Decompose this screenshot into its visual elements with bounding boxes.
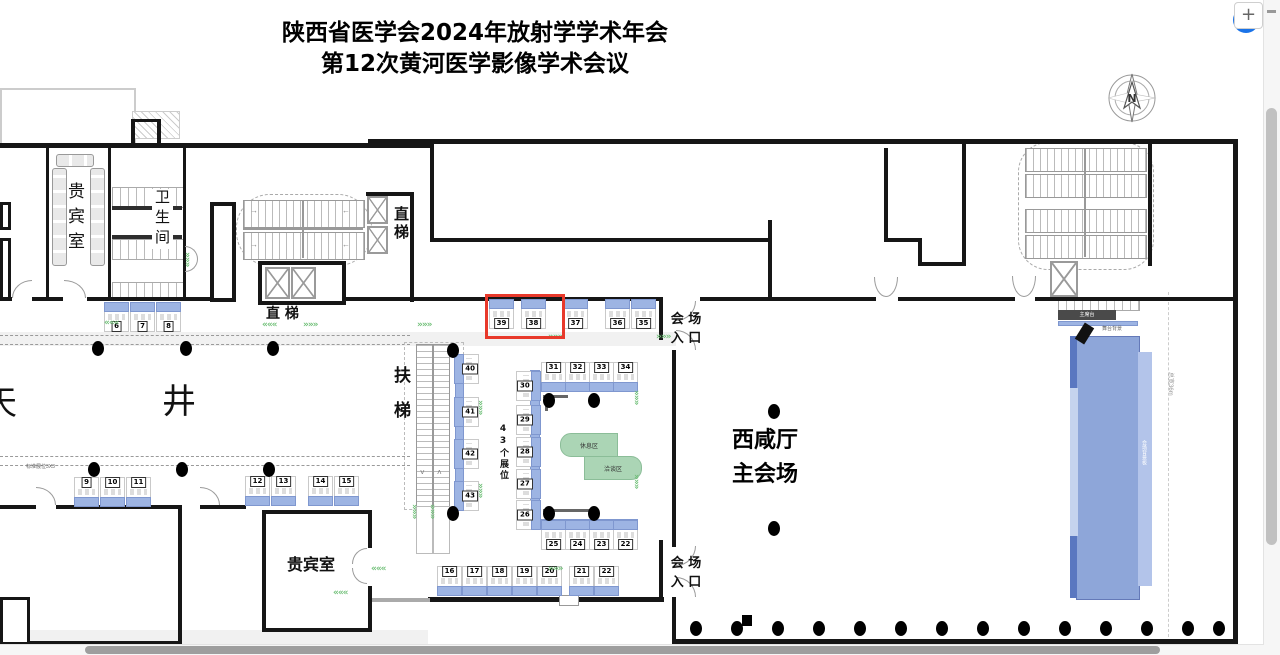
sofa-table [56, 154, 94, 167]
entrance-top-line2: 入 口 [664, 329, 708, 348]
stage-dashed-line [1168, 292, 1169, 642]
column-dot [895, 621, 907, 636]
elevator-shaft [265, 267, 290, 299]
column-dot [588, 393, 600, 408]
booth-wall-bar [156, 302, 181, 312]
wall [659, 540, 663, 601]
door-arc [886, 277, 898, 297]
column-dot [1141, 621, 1153, 636]
booth-9: 9 [74, 477, 99, 507]
column-shaft [210, 202, 236, 302]
stair-arrow: → [250, 240, 258, 249]
booth-wall-bar [130, 302, 155, 312]
column-dot [854, 621, 866, 636]
horizontal-scrollbar[interactable] [0, 644, 1264, 655]
booth-18: 18 [487, 566, 512, 596]
booth-14: 14 [308, 476, 333, 506]
booth-wall-bar [541, 520, 566, 530]
rest-area-top-label: 休息区 [580, 441, 598, 450]
booth-number-label: 27 [517, 479, 533, 490]
direction-chevron: »»» [548, 564, 562, 574]
wall [700, 297, 876, 301]
booth-25: 25 [541, 520, 566, 550]
escalator-down-mark: ˅ [420, 468, 425, 477]
wall [157, 119, 161, 146]
staircase-center [236, 194, 372, 266]
direction-chevron: »»» [417, 320, 431, 330]
wall [0, 505, 36, 509]
hall-label-line2: 主会场 [710, 458, 820, 492]
direction-chevron: »»» [475, 400, 485, 414]
booth-wall-bar [605, 299, 630, 309]
booth-wall-bar [126, 497, 151, 507]
wall [1148, 139, 1152, 266]
railing [372, 598, 430, 602]
booth-count-label: 43个展位 [497, 424, 510, 481]
booth-16: 16 [437, 566, 462, 596]
stair-arrow: → [250, 206, 258, 215]
escalator-lane [416, 344, 433, 508]
zoom-in-button[interactable]: + [1234, 2, 1263, 29]
booth-number-label: 14 [313, 476, 329, 487]
left-room-stub [0, 202, 11, 230]
wall [884, 148, 888, 242]
building-outline [0, 88, 136, 148]
booth-7: 7 [130, 302, 155, 332]
booth-number-label: 11 [131, 477, 147, 488]
direction-chevron: »»» [631, 474, 641, 488]
stage-step [1058, 321, 1138, 326]
booth-number-label: 12 [250, 476, 266, 487]
rest-area-top: 休息区 [560, 433, 618, 457]
booth-11: 11 [126, 477, 151, 507]
booth-number-label: 7 [137, 321, 148, 332]
booth-wall-bar [589, 382, 614, 392]
booth-34: 34 [613, 362, 638, 392]
left-room-stub [0, 238, 11, 300]
column-dot [180, 341, 192, 356]
booth-10: 10 [100, 477, 125, 507]
scrollbar-dash [1267, 10, 1276, 13]
column-dot [1213, 621, 1225, 636]
booth-number-label: 29 [517, 415, 533, 426]
booth-19: 19 [512, 566, 537, 596]
booth-wall-bar [613, 520, 638, 530]
wall [131, 119, 135, 146]
escalator-label: 扶梯 [388, 366, 413, 436]
wall [183, 146, 186, 300]
roof-hatch [132, 111, 180, 139]
wall [1233, 139, 1238, 645]
wall [46, 146, 49, 300]
rest-area-bottom-label: 洽谈区 [604, 464, 622, 473]
booth-number-label: 37 [568, 318, 584, 329]
column-dot [977, 621, 989, 636]
booth-number-label: 15 [339, 476, 355, 487]
direction-chevron: »»» [631, 390, 641, 404]
booth-number-label: 18 [492, 566, 508, 577]
direction-chevron: ««« [371, 564, 385, 574]
wall [428, 597, 664, 602]
wall [768, 220, 772, 301]
atrium-edge-bottom [0, 456, 410, 466]
title-line2: 第12次黄河医学影像学术会议 [255, 49, 695, 80]
hall-label-line1: 西咸厅 [710, 424, 820, 458]
booth-wall-bar [537, 586, 562, 596]
booth-wall-bar [565, 382, 590, 392]
standard-booth-note: 标准展位3X3 [26, 463, 55, 470]
floor-plan-viewer: 陕西省医学会2024年放射学学术年会 第12次黄河医学影像学术会议 + N [0, 0, 1280, 655]
entrance-top-label: 会 场 入 口 [664, 310, 708, 348]
page-title: 陕西省医学会2024年放射学学术年会 第12次黄河医学影像学术会议 [255, 18, 695, 80]
booth-31: 31 [541, 362, 566, 392]
booth-wall-bar [437, 586, 462, 596]
column-dot [176, 462, 188, 477]
booth-wall-bar [245, 496, 270, 506]
direction-chevron: »»» [182, 252, 192, 266]
booth-wall-bar [462, 586, 487, 596]
door-arc [1012, 276, 1024, 297]
stage-note: 舞台背景 [1102, 325, 1122, 332]
wall [898, 297, 1015, 301]
booth-22: 22 [594, 566, 619, 596]
door-arc [12, 280, 32, 298]
booth-8: 8 [156, 302, 181, 332]
atrium-edge-top [0, 335, 410, 345]
direction-chevron: »»» [409, 504, 419, 518]
booth-number-label: 33 [594, 362, 610, 373]
wall [1035, 297, 1237, 301]
booth-26: 26 [516, 500, 541, 530]
booth-wall-bar [487, 586, 512, 596]
booth-number-label: 31 [546, 362, 562, 373]
booth-number-label: 22 [618, 539, 634, 550]
stage-bar: 主席台 [1058, 310, 1116, 320]
booth-13: 13 [271, 476, 296, 506]
column-dot [936, 621, 948, 636]
toilet-stalls [112, 239, 184, 260]
booth-42: 42 [454, 439, 479, 469]
booth-28: 28 [516, 437, 541, 467]
booth-wall-bar [594, 586, 619, 596]
stage-board-label: 会场背景板 [1141, 440, 1148, 465]
column-dot [543, 506, 555, 521]
entrance-top-line1: 会 场 [664, 310, 708, 329]
atrium-label-right: 井 [162, 374, 196, 423]
booth-number-label: 26 [517, 510, 533, 521]
booth-number-label: 21 [574, 566, 590, 577]
booth-number-label: 24 [570, 539, 586, 550]
column-dot [772, 621, 784, 636]
column-dot [768, 404, 780, 419]
booth-24: 24 [565, 520, 590, 550]
column-dot [88, 462, 100, 477]
staircase-topright [1018, 142, 1154, 270]
booth-37: 37 [563, 299, 588, 329]
booth-number-label: 36 [610, 318, 626, 329]
column-dot [1018, 621, 1030, 636]
column-dot [768, 521, 780, 536]
elevator-shaft [291, 267, 316, 299]
booth-35: 35 [631, 299, 656, 329]
stair-arrow: ← [342, 206, 350, 215]
booth-wall-bar [334, 496, 359, 506]
column-dot [1100, 621, 1112, 636]
direction-chevron: »»» [656, 332, 670, 342]
wall [178, 505, 182, 646]
elevator-right-label: 直梯 [391, 206, 412, 242]
booth-wall-bar [541, 382, 566, 392]
booth-17: 17 [462, 566, 487, 596]
direction-chevron: ««« [262, 320, 276, 330]
wall [918, 262, 966, 266]
booth-number-label: 19 [517, 566, 533, 577]
wall [430, 143, 434, 242]
booth-23: 23 [589, 520, 614, 550]
booth-wall-bar [631, 299, 656, 309]
column-dot [813, 621, 825, 636]
atrium-label-left: 天 [0, 376, 17, 424]
booth-number-label: 35 [636, 318, 652, 329]
booth-wall-bar [100, 497, 125, 507]
column-dot [588, 506, 600, 521]
elevator-shaft [367, 196, 388, 224]
booth-number-label: 22 [599, 566, 615, 577]
booth-wall-bar [512, 586, 537, 596]
width-note: 总宽36m [1167, 372, 1176, 396]
direction-chevron: ««« [104, 318, 118, 328]
booth-wall-bar [308, 496, 333, 506]
vertical-scrollbar-thumb[interactable] [1266, 108, 1277, 545]
booth-number-label: 32 [570, 362, 586, 373]
direction-chevron: »»» [427, 504, 437, 518]
escalator-up-mark: ˄ [437, 468, 442, 477]
booth-wall-bar [589, 520, 614, 530]
wall [672, 597, 676, 644]
escalator-lane [433, 344, 450, 508]
booth-12: 12 [245, 476, 270, 506]
booth-highlight-38-39 [485, 294, 565, 339]
direction-chevron: »»» [475, 483, 485, 497]
column-dot [731, 621, 743, 636]
stage-bar-label: 主席台 [1079, 312, 1094, 318]
booth-wall-bar [565, 520, 590, 530]
direction-chevron: ««« [333, 588, 347, 598]
entrance-bottom-line1: 会 场 [664, 554, 708, 573]
booth-wall-bar [563, 299, 588, 309]
compass-north-label: N [1127, 92, 1136, 105]
wall [672, 350, 676, 547]
restroom-label: 卫生间 [152, 189, 173, 249]
elevator-shaft [367, 226, 388, 254]
vertical-scrollbar[interactable] [1263, 0, 1280, 655]
sofa-column [90, 168, 105, 266]
door-arc [874, 277, 886, 297]
booth-number-label: 10 [105, 477, 121, 488]
direction-chevron: »»» [303, 320, 317, 330]
booth-21: 21 [569, 566, 594, 596]
compass-icon: N [1106, 72, 1158, 124]
booth-33: 33 [589, 362, 614, 392]
booth-40: 40 [454, 354, 479, 384]
column-dot [267, 341, 279, 356]
column-dot [447, 506, 459, 521]
stair-arrow: ← [342, 240, 350, 249]
booth-number-label: 28 [517, 447, 533, 458]
booth-32: 32 [565, 362, 590, 392]
booth-number-label: 42 [462, 449, 478, 460]
wall [884, 238, 922, 242]
column-dot [92, 341, 104, 356]
booth-wall-bar [74, 497, 99, 507]
column-dot [690, 621, 702, 636]
booth-number-label: 13 [276, 476, 292, 487]
wall [430, 238, 772, 242]
booth-36: 36 [605, 299, 630, 329]
wall [108, 146, 111, 300]
bottom-left-room [0, 597, 30, 645]
column-dot [543, 393, 555, 408]
booth-15: 15 [334, 476, 359, 506]
column-square [742, 615, 752, 626]
vip-room-top-label: 贵宾室 [62, 182, 87, 257]
horizontal-scrollbar-thumb[interactable] [85, 646, 1160, 654]
booth-number-label: 40 [462, 364, 478, 375]
entrance-bottom-line2: 入 口 [664, 573, 708, 592]
booth-wall-bar [569, 586, 594, 596]
booth-30: 30 [516, 371, 541, 401]
column-dot [447, 343, 459, 358]
wall-gap [559, 595, 579, 606]
title-line1: 陕西省医学会2024年放射学学术年会 [255, 18, 695, 49]
booth-number-label: 30 [517, 381, 533, 392]
booth-number-label: 17 [467, 566, 483, 577]
stage-strip-light [1070, 388, 1078, 536]
toilet-stalls [112, 187, 184, 208]
hall-label: 西咸厅 主会场 [710, 424, 820, 492]
booth-number-label: 16 [442, 566, 458, 577]
column-dot [1182, 621, 1194, 636]
door-arc [64, 280, 86, 298]
door-arc [1024, 276, 1036, 297]
stage-main [1076, 336, 1140, 600]
elevator-shaft [1050, 261, 1078, 297]
booth-22: 22 [613, 520, 638, 550]
booth-number-label: 9 [81, 477, 92, 488]
column-dot [1059, 621, 1071, 636]
door-arc [36, 487, 56, 505]
column-dot [263, 462, 275, 477]
booth-number-label: 8 [163, 321, 174, 332]
booth-27: 27 [516, 469, 541, 499]
wall [962, 139, 966, 266]
booth-number-label: 23 [594, 539, 610, 550]
wall [368, 139, 1237, 144]
door-arc [200, 487, 220, 505]
vip-room-bottom-label: 贵宾室 [287, 551, 335, 575]
booth-wall-bar [104, 302, 129, 312]
entrance-bottom-label: 会 场 入 口 [664, 554, 708, 592]
wall [200, 505, 246, 509]
booth-number-label: 34 [618, 362, 634, 373]
stage-board [1138, 352, 1152, 586]
booth-29: 29 [516, 405, 541, 435]
booth-number-label: 25 [546, 539, 562, 550]
booth-wall-bar [271, 496, 296, 506]
